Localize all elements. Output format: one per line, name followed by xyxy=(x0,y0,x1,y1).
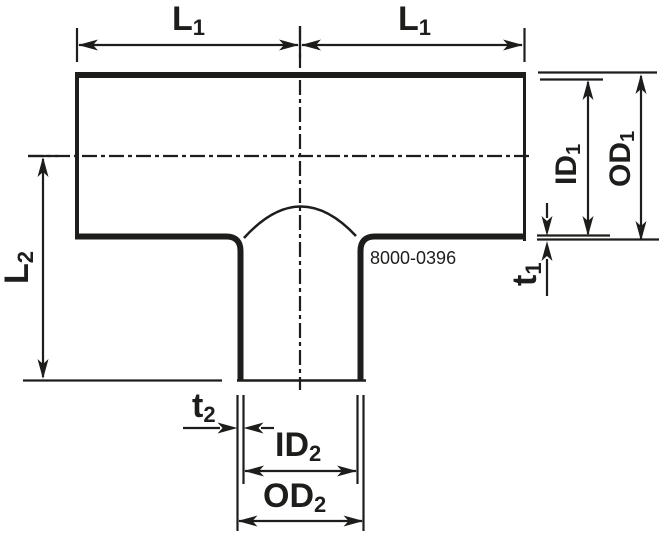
t1-arrow-down xyxy=(542,216,553,236)
label-id1: ID1 xyxy=(550,144,585,185)
drawing-canvas: L1 L1 L2 ID1 OD1 t1 xyxy=(0,0,659,542)
t1-arrow-up xyxy=(542,241,553,261)
dimension-id2: ID2 xyxy=(244,426,357,477)
t2-arrow-left xyxy=(244,423,264,434)
dimension-t2: t2 xyxy=(183,387,274,434)
dimension-t1: t1 xyxy=(506,203,553,296)
label-id2: ID2 xyxy=(275,426,321,466)
part-number: 8000-0396 xyxy=(370,248,456,268)
tee-dimension-drawing: L1 L1 L2 ID1 OD1 t1 xyxy=(0,0,659,542)
label-t2: t2 xyxy=(192,387,216,427)
label-l2: L2 xyxy=(0,251,38,284)
dimension-l1-right: L1 xyxy=(301,0,525,62)
main-pipe-bottom-left-edge-and-branch-left-wall xyxy=(75,237,241,381)
label-l1-right: L1 xyxy=(398,0,431,40)
label-od2: OD2 xyxy=(263,477,326,517)
centerlines xyxy=(28,26,533,390)
label-od1: OD1 xyxy=(604,131,639,187)
dimension-l2: L2 xyxy=(0,157,222,381)
dimension-od2: OD2 xyxy=(238,477,364,527)
t2-arrow-right xyxy=(218,423,238,434)
dimension-l1-left: L1 xyxy=(77,0,299,62)
label-t1: t1 xyxy=(506,262,546,286)
label-l1-left: L1 xyxy=(172,0,205,40)
